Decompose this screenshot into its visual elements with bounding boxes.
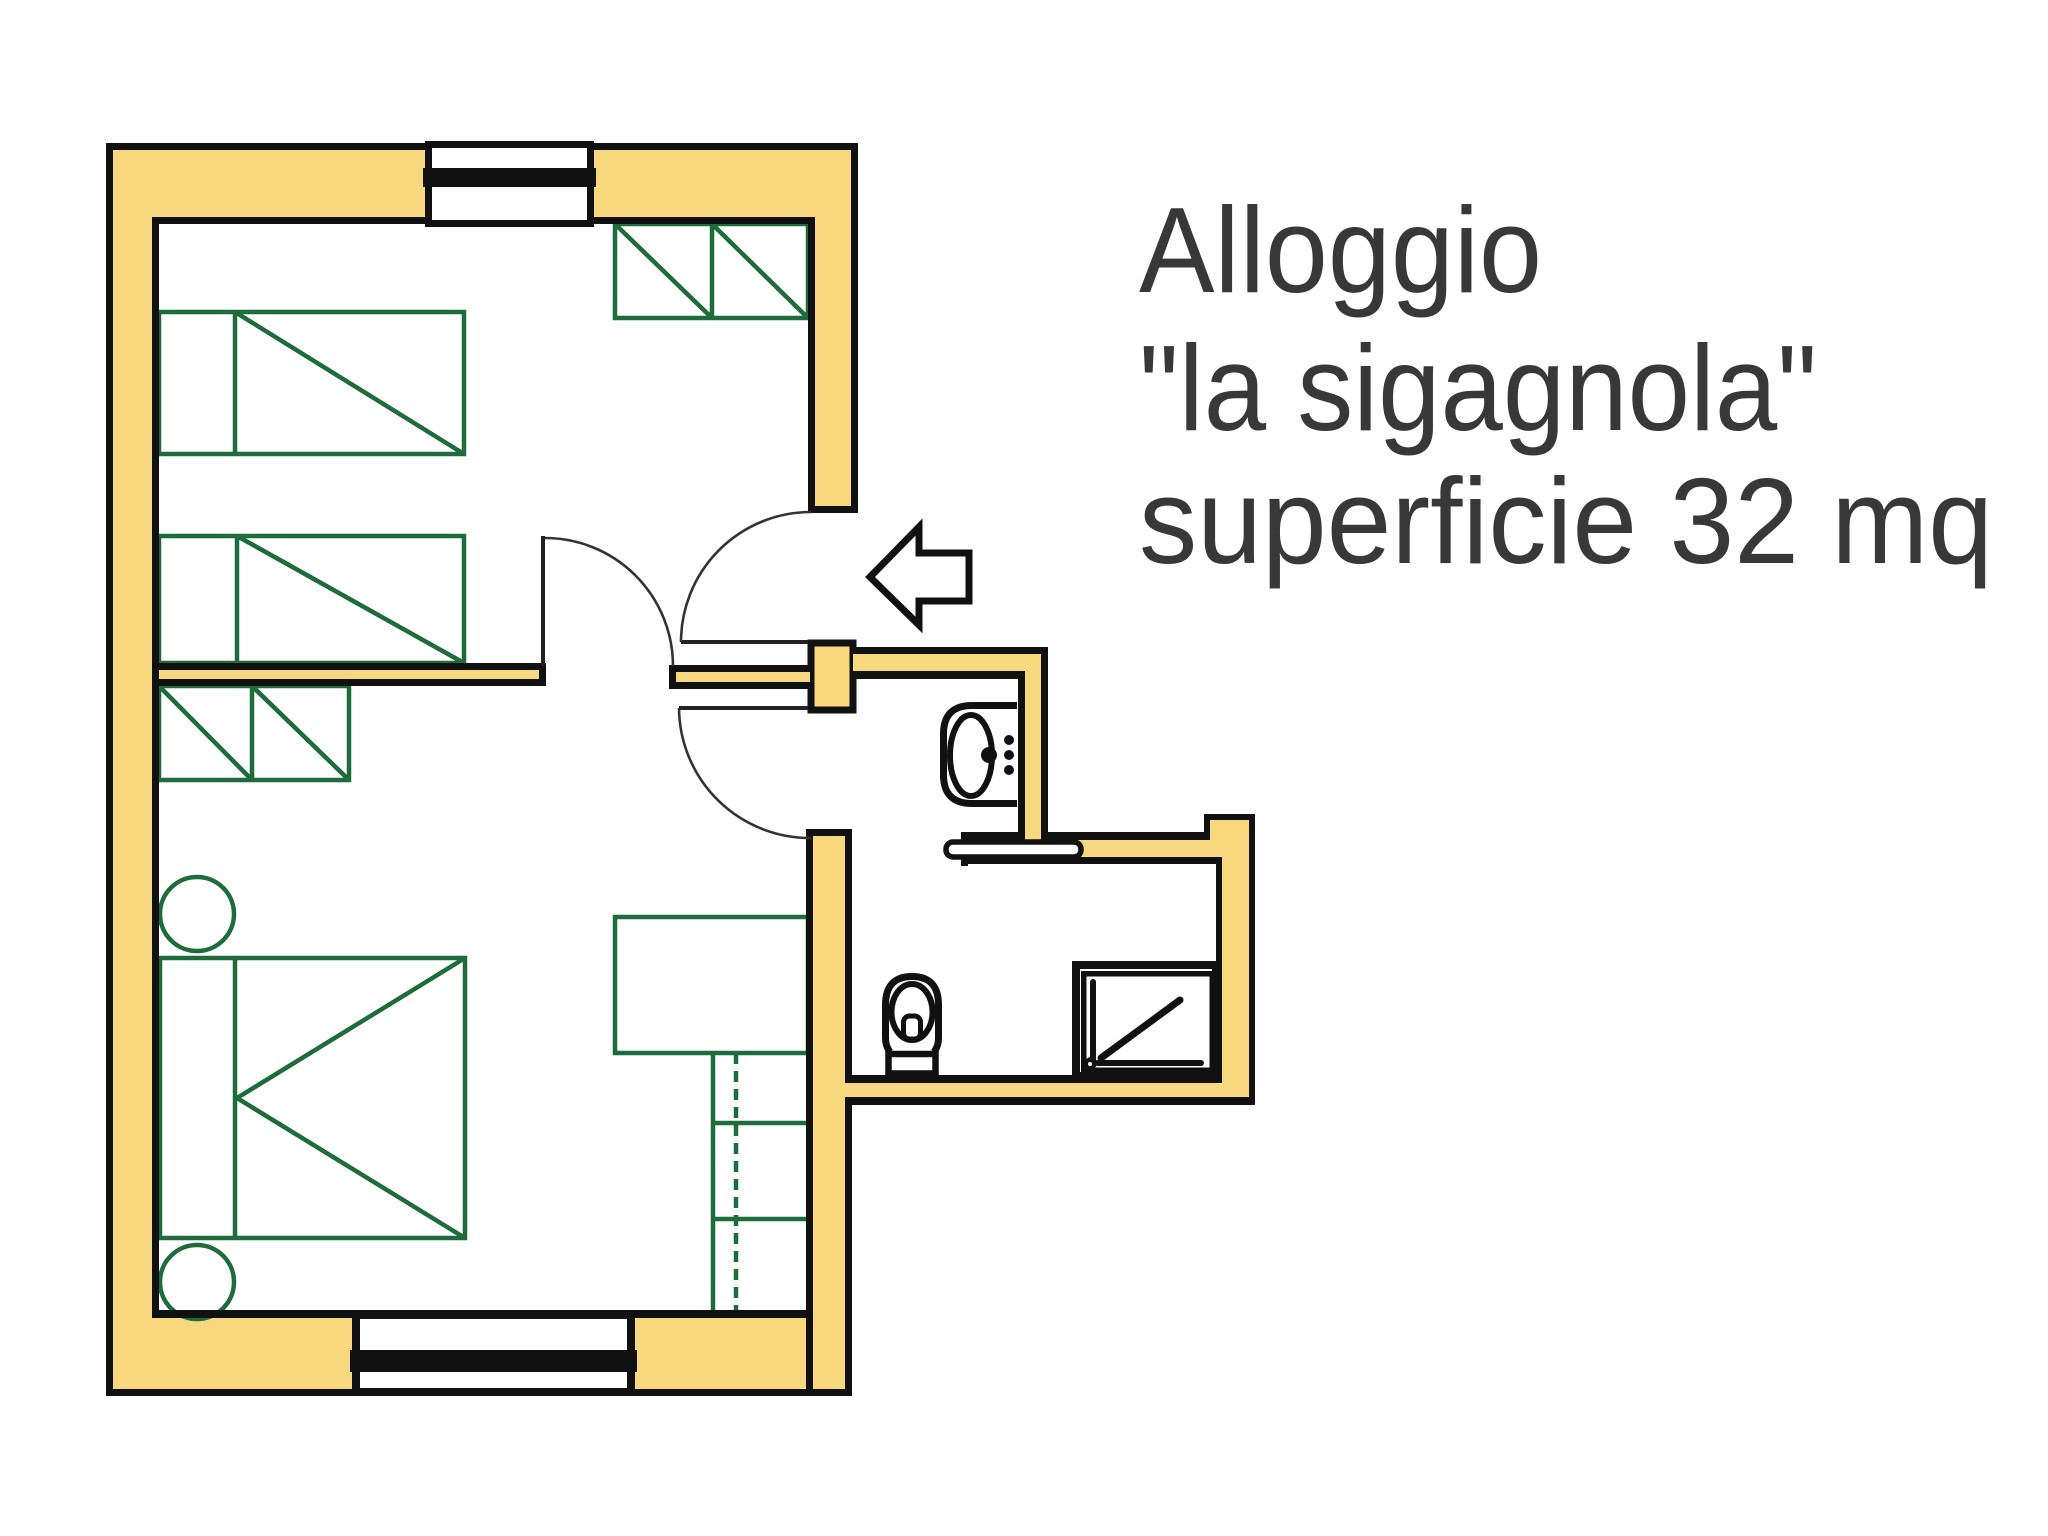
svg-text:superficie 32 mq: superficie 32 mq [1139,453,1993,589]
svg-text:Alloggio: Alloggio [1139,182,1542,318]
svg-text:"la sigagnola": "la sigagnola" [1139,320,1817,456]
